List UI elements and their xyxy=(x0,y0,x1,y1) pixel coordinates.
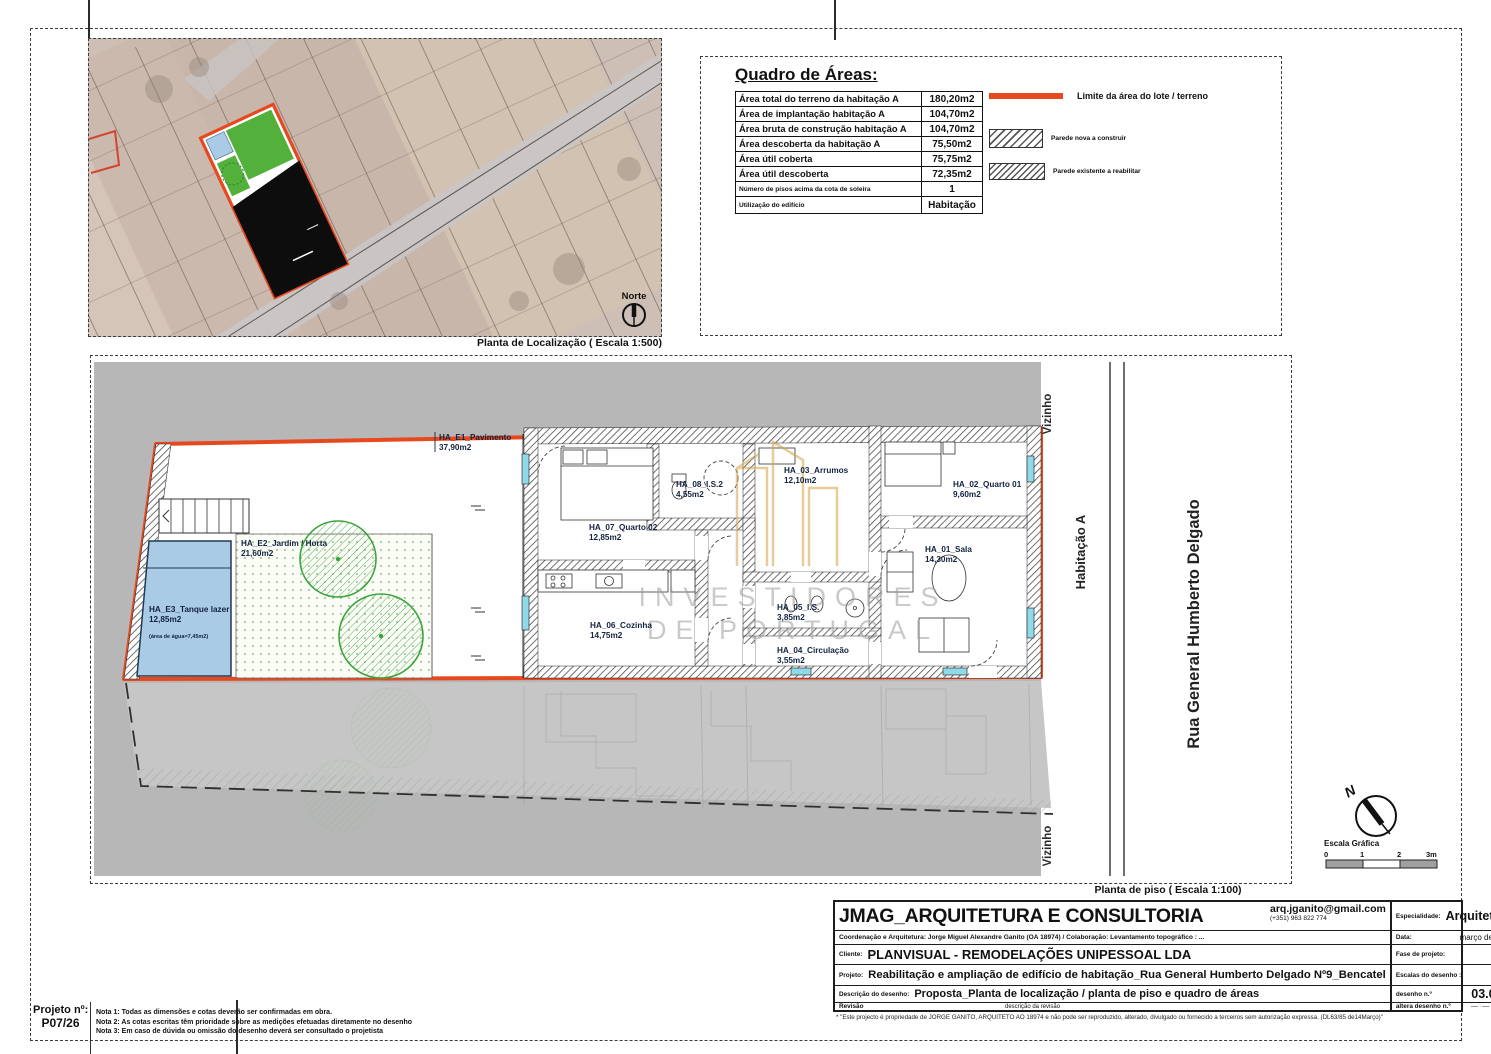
specialty-value: Arquitetura xyxy=(1446,909,1491,923)
legend-item: Parede nova a construir xyxy=(989,129,1126,148)
floor-plan-caption: Planta de piso ( Escala 1:100) xyxy=(1023,884,1313,896)
svg-text:HA_E3_Tanque lazer: HA_E3_Tanque lazer xyxy=(149,605,230,614)
svg-text:21,60m2: 21,60m2 xyxy=(241,549,274,558)
svg-text:Escala Gráfica: Escala Gráfica xyxy=(1324,839,1380,848)
neighbor-label-bottom: Vizinho xyxy=(1042,826,1054,867)
divider xyxy=(90,1002,91,1054)
north-compass: Norte xyxy=(622,291,647,326)
svg-text:3,55m2: 3,55m2 xyxy=(777,656,805,665)
table-row: Área total do terreno da habitação A 180… xyxy=(736,92,982,107)
contact-info: arq.jganito@gmail.com (+351) 963 822 774 xyxy=(1270,904,1386,922)
general-notes: Nota 1: Todas as dimensões e cotas dever… xyxy=(96,1008,476,1037)
table-row: Área bruta de construção habitação A 104… xyxy=(736,122,982,137)
table-row: Número de pisos acima da cota de soleira… xyxy=(736,182,982,197)
svg-text:3m: 3m xyxy=(1426,850,1437,859)
note-line: Nota 2: As cotas escritas têm prioridade… xyxy=(96,1018,476,1028)
svg-text:N: N xyxy=(1342,781,1360,800)
svg-text:37,90m2: 37,90m2 xyxy=(439,443,472,452)
table-row: Área descoberta da habitação A 75,50m2 xyxy=(736,137,982,152)
north-label: Norte xyxy=(622,291,647,302)
graphic-scale: Escala Gráfica 0 1 2 3m xyxy=(1324,839,1437,868)
svg-text:HA_06_Cozinha: HA_06_Cozinha xyxy=(590,621,652,630)
location-plan-caption: Planta de Localização ( Escala 1:500) xyxy=(420,337,662,349)
title-block-left: JMAG_ARQUITETURA E CONSULTORIA arq.jgani… xyxy=(835,902,1390,1010)
project-number-box: Projeto nº: P07/26 xyxy=(33,1004,88,1030)
title-block: JMAG_ARQUITETURA E CONSULTORIA arq.jgani… xyxy=(833,900,1463,1012)
plan-north-arrow: N xyxy=(1342,781,1397,836)
company-name: JMAG_ARQUITETURA E CONSULTORIA xyxy=(839,905,1203,928)
svg-text:0: 0 xyxy=(1324,850,1328,859)
svg-text:3,85m2: 3,85m2 xyxy=(777,613,805,622)
coordination-line: Coordenação e Arquitetura: Jorge Miguel … xyxy=(839,934,1204,941)
drawing-sheet: Norte Planta de Localização ( Escala 1:5… xyxy=(0,0,1491,1054)
unit-label: Habitação A xyxy=(1073,514,1088,589)
phone: (+351) 963 822 774 xyxy=(1270,915,1386,922)
areas-table: Área total do terreno da habitação A 180… xyxy=(735,91,983,214)
email: arq.jganito@gmail.com xyxy=(1270,904,1386,915)
svg-text:HA_02_Quarto 01: HA_02_Quarto 01 xyxy=(953,480,1022,489)
svg-text:HA_08_I.S.2: HA_08_I.S.2 xyxy=(676,480,723,489)
svg-text:HA_E2_Jardim / Horta: HA_E2_Jardim / Horta xyxy=(241,539,327,548)
project-name: Reabilitação e ampliação de edifício de … xyxy=(868,969,1386,981)
revision-description: descrição da revisão xyxy=(1005,1004,1060,1010)
svg-text:HA_E1_Pavimento: HA_E1_Pavimento xyxy=(439,433,511,442)
existing-wall-swatch xyxy=(989,163,1045,180)
areas-table-title: Quadro de Áreas: xyxy=(735,65,878,85)
note-line: Nota 3: Em caso de dúvida ou omissão do … xyxy=(96,1027,476,1037)
new-wall-swatch xyxy=(989,129,1043,148)
svg-text:HA_01_Sala: HA_01_Sala xyxy=(925,545,972,554)
svg-text:12,10m2: 12,10m2 xyxy=(784,476,817,485)
client-name: PLANVISUAL - REMODELAÇÕES UNIPESSOAL LDA xyxy=(867,947,1191,962)
floor-plan-drawing: INVESTIDORES DE PORTUGAL HA_E1_Pavimento… xyxy=(91,356,1287,879)
table-row: Área útil descoberta 72,35m2 xyxy=(736,167,982,182)
svg-text:9,60m2: 9,60m2 xyxy=(953,490,981,499)
project-number-label: Projeto nº: xyxy=(33,1004,88,1016)
neighbor-label-top: Vizinho xyxy=(1042,394,1054,435)
date-value: março de 2026 xyxy=(1460,933,1491,942)
note-line: Nota 1: Todas as dimensões e cotas dever… xyxy=(96,1008,476,1018)
svg-text:(área de água=7,45m2): (área de água=7,45m2) xyxy=(149,634,208,640)
floor-plan-panel: INVESTIDORES DE PORTUGAL HA_E1_Pavimento… xyxy=(90,355,1292,884)
table-row: Área de implantação habitação A 104,70m2 xyxy=(736,107,982,122)
svg-text:HA_05_I.S.: HA_05_I.S. xyxy=(777,603,819,612)
crop-mark xyxy=(834,0,836,40)
table-row: Utilização do edifício Habitação xyxy=(736,197,982,213)
svg-text:4,55m2: 4,55m2 xyxy=(676,490,704,499)
alters-drawing-value: —·—·—·— xyxy=(1471,1003,1491,1010)
project-label: Projeto: xyxy=(839,972,863,979)
svg-text:1: 1 xyxy=(1360,850,1364,859)
drawing-description: Proposta_Planta de localização / planta … xyxy=(914,988,1259,1000)
legend-item: Parede existente a reabilitar xyxy=(989,163,1141,180)
revision-label: Revisão xyxy=(839,1003,864,1010)
svg-text:12,85m2: 12,85m2 xyxy=(589,533,622,542)
svg-text:2: 2 xyxy=(1397,850,1401,859)
svg-text:HA_04_Circulação: HA_04_Circulação xyxy=(777,646,849,655)
satellite-image: Norte xyxy=(89,39,661,336)
drawing-number-value: 03.02.1 xyxy=(1471,987,1491,1001)
svg-text:12,85m2: 12,85m2 xyxy=(149,615,182,624)
table-row: Área útil coberta 75,75m2 xyxy=(736,152,982,167)
copyright-footnote: * "Este projecto é propriedade de JORGE … xyxy=(836,1014,1462,1021)
street-label: Rua General Humberto Delgado xyxy=(1185,499,1203,748)
project-number-value: P07/26 xyxy=(33,1016,88,1030)
client-label: Cliente: xyxy=(839,951,862,958)
areas-panel: Quadro de Áreas: Área total do terreno d… xyxy=(700,56,1282,336)
svg-text:HA_03_Arrumos: HA_03_Arrumos xyxy=(784,466,849,475)
lot-boundary-swatch xyxy=(989,93,1063,99)
description-label: Descrição do desenho: xyxy=(839,991,909,998)
north-and-scale: N Escala Gráfica 0 1 2 3m xyxy=(1318,780,1458,880)
svg-text:HA_07_Quarto 02: HA_07_Quarto 02 xyxy=(589,523,658,532)
stairs xyxy=(159,499,249,533)
svg-text:14,75m2: 14,75m2 xyxy=(590,631,623,640)
legend-item: Limite da área do lote / terreno xyxy=(989,91,1208,101)
title-block-right: Especialidade: Arquitetura Data: março d… xyxy=(1390,902,1491,1010)
svg-text:14,30m2: 14,30m2 xyxy=(925,555,958,564)
location-plan-panel: Norte xyxy=(88,38,662,337)
